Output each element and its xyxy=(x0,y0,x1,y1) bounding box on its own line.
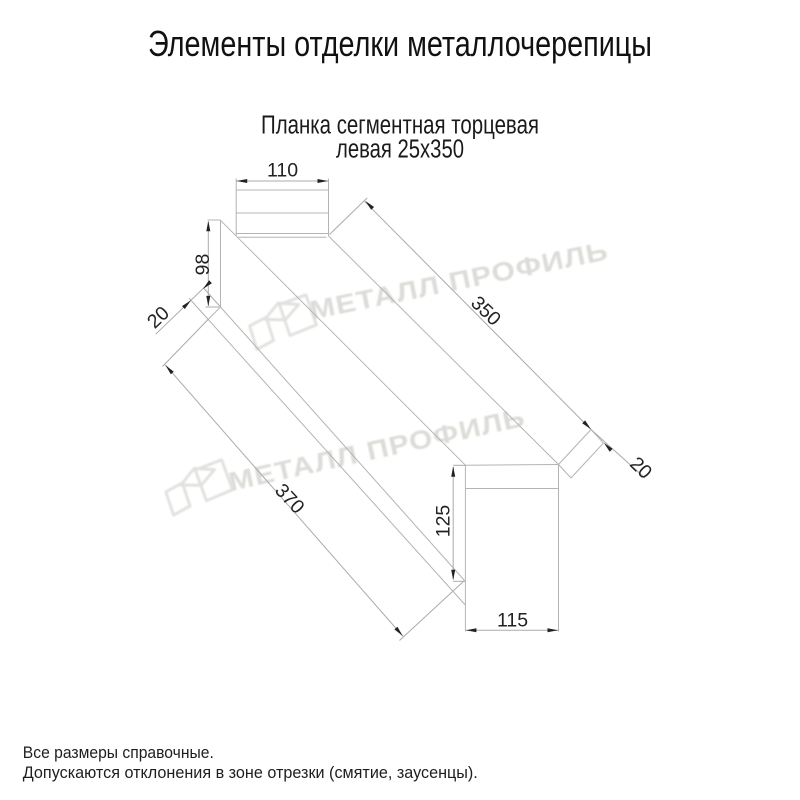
svg-text:Допускаются отклонения в зоне: Допускаются отклонения в зоне отрезки (с… xyxy=(23,763,478,782)
svg-text:20: 20 xyxy=(143,302,174,333)
svg-text:20: 20 xyxy=(625,453,656,484)
svg-text:125: 125 xyxy=(433,505,455,538)
svg-text:110: 110 xyxy=(267,160,298,182)
svg-text:МЕТАЛЛ ПРОФИЛЬ: МЕТАЛЛ ПРОФИЛЬ xyxy=(307,235,611,325)
svg-text:350: 350 xyxy=(466,292,505,330)
svg-text:115: 115 xyxy=(497,610,528,632)
svg-text:левая 25х350: левая 25х350 xyxy=(336,136,464,164)
svg-text:Элементы отделки металлочерепи: Элементы отделки металлочерепицы xyxy=(148,23,652,64)
svg-text:98: 98 xyxy=(192,254,214,276)
svg-text:Все размеры справочные.: Все размеры справочные. xyxy=(23,743,214,762)
